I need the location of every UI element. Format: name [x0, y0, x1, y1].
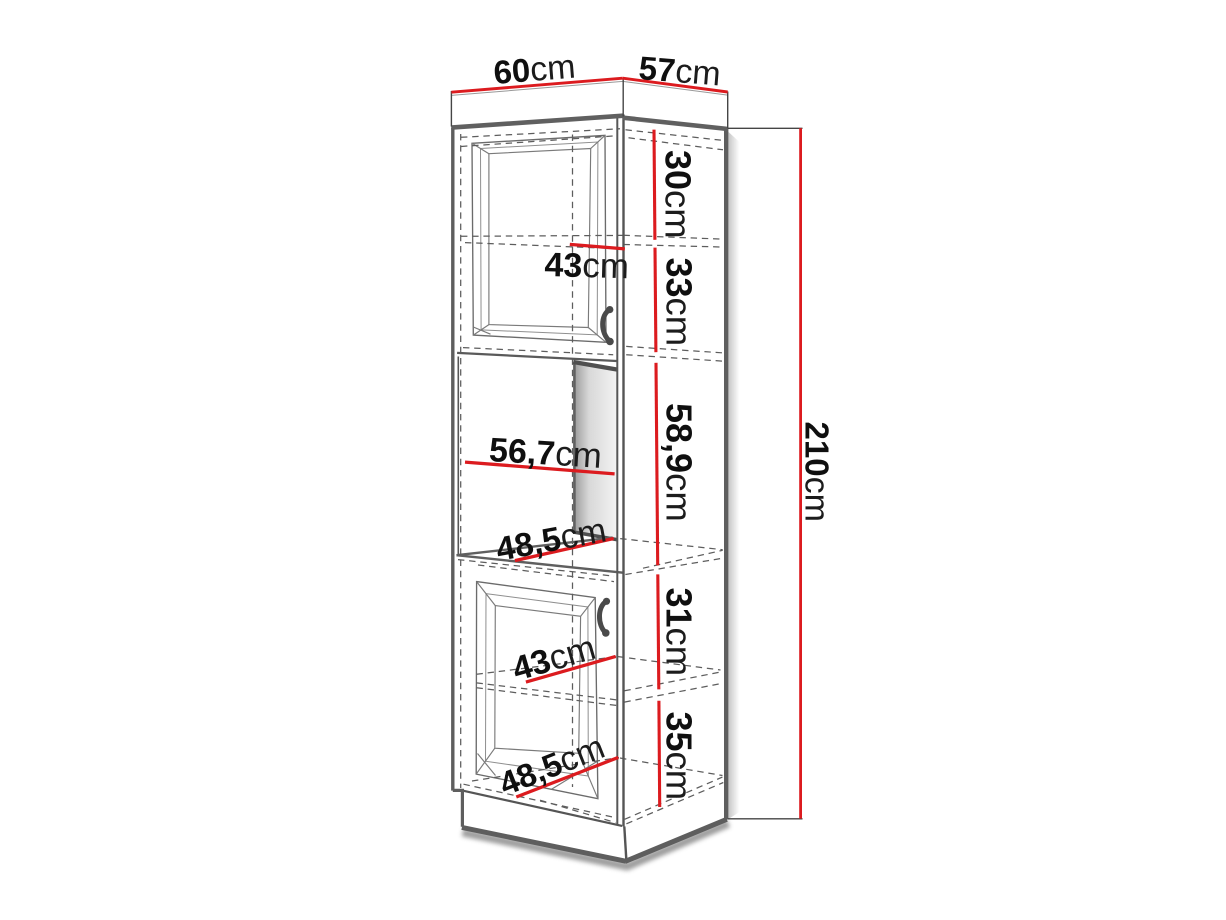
- svg-text:60cm: 60cm: [492, 48, 577, 92]
- svg-text:210cm: 210cm: [798, 422, 836, 522]
- svg-text:43cm: 43cm: [544, 245, 629, 286]
- svg-text:57cm: 57cm: [637, 49, 722, 93]
- svg-text:35cm: 35cm: [659, 712, 700, 801]
- svg-text:30cm: 30cm: [658, 150, 699, 239]
- svg-text:31cm: 31cm: [659, 588, 700, 677]
- svg-text:56,7cm: 56,7cm: [488, 430, 603, 476]
- svg-text:58,9cm: 58,9cm: [659, 403, 700, 522]
- svg-text:33cm: 33cm: [659, 258, 700, 347]
